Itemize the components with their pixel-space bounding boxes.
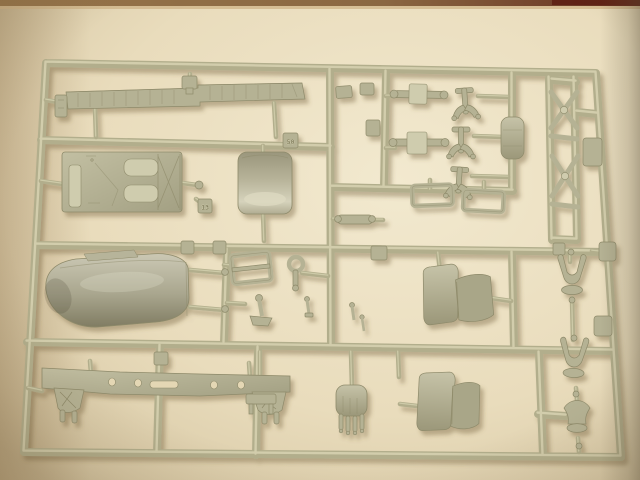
sprue-photo-svg: 50 13 [0, 0, 640, 480]
photo-model-sprue: 50 13 [0, 0, 640, 480]
vignette [0, 0, 640, 480]
